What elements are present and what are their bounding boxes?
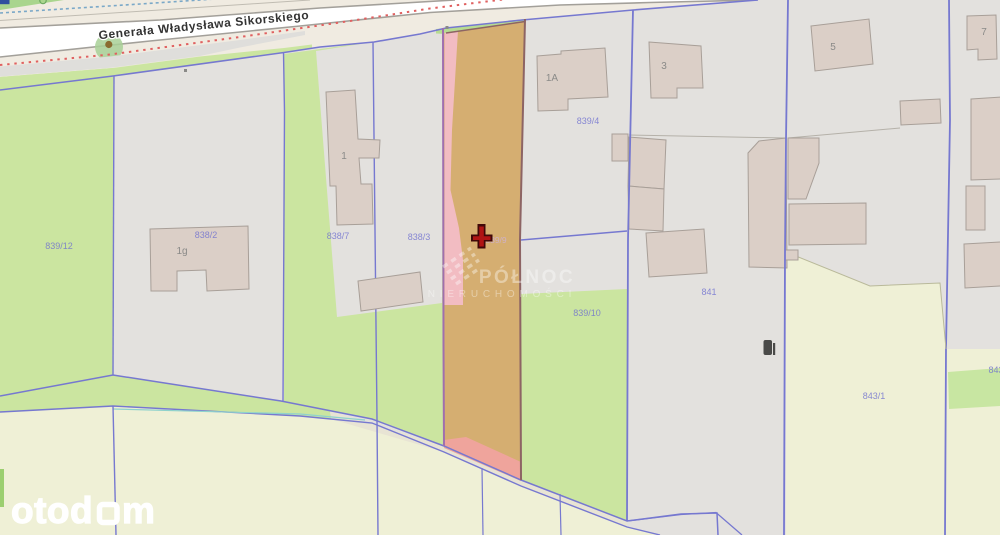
svg-text:NIERUCHOMOŚCI: NIERUCHOMOŚCI	[428, 287, 577, 300]
svg-text:841: 841	[701, 287, 716, 297]
svg-text:839/12: 839/12	[45, 241, 73, 251]
svg-text:838/7: 838/7	[327, 231, 350, 241]
svg-text:1g: 1g	[176, 246, 187, 257]
svg-text:1A: 1A	[546, 73, 559, 84]
svg-text:3: 3	[661, 61, 667, 72]
svg-text:otod: otod	[11, 490, 93, 531]
svg-text:1: 1	[341, 151, 347, 162]
svg-text:839/4: 839/4	[577, 116, 600, 126]
svg-text:838/3: 838/3	[408, 232, 431, 242]
svg-text:PÓŁNOC: PÓŁNOC	[479, 266, 575, 288]
svg-text:5: 5	[830, 42, 836, 53]
svg-text:843/1: 843/1	[863, 391, 886, 401]
svg-text:7: 7	[981, 27, 987, 38]
svg-text:839/10: 839/10	[573, 308, 601, 318]
svg-text:838/2: 838/2	[195, 230, 218, 240]
svg-text:m: m	[122, 490, 155, 531]
svg-text:843: 843	[988, 365, 1000, 375]
